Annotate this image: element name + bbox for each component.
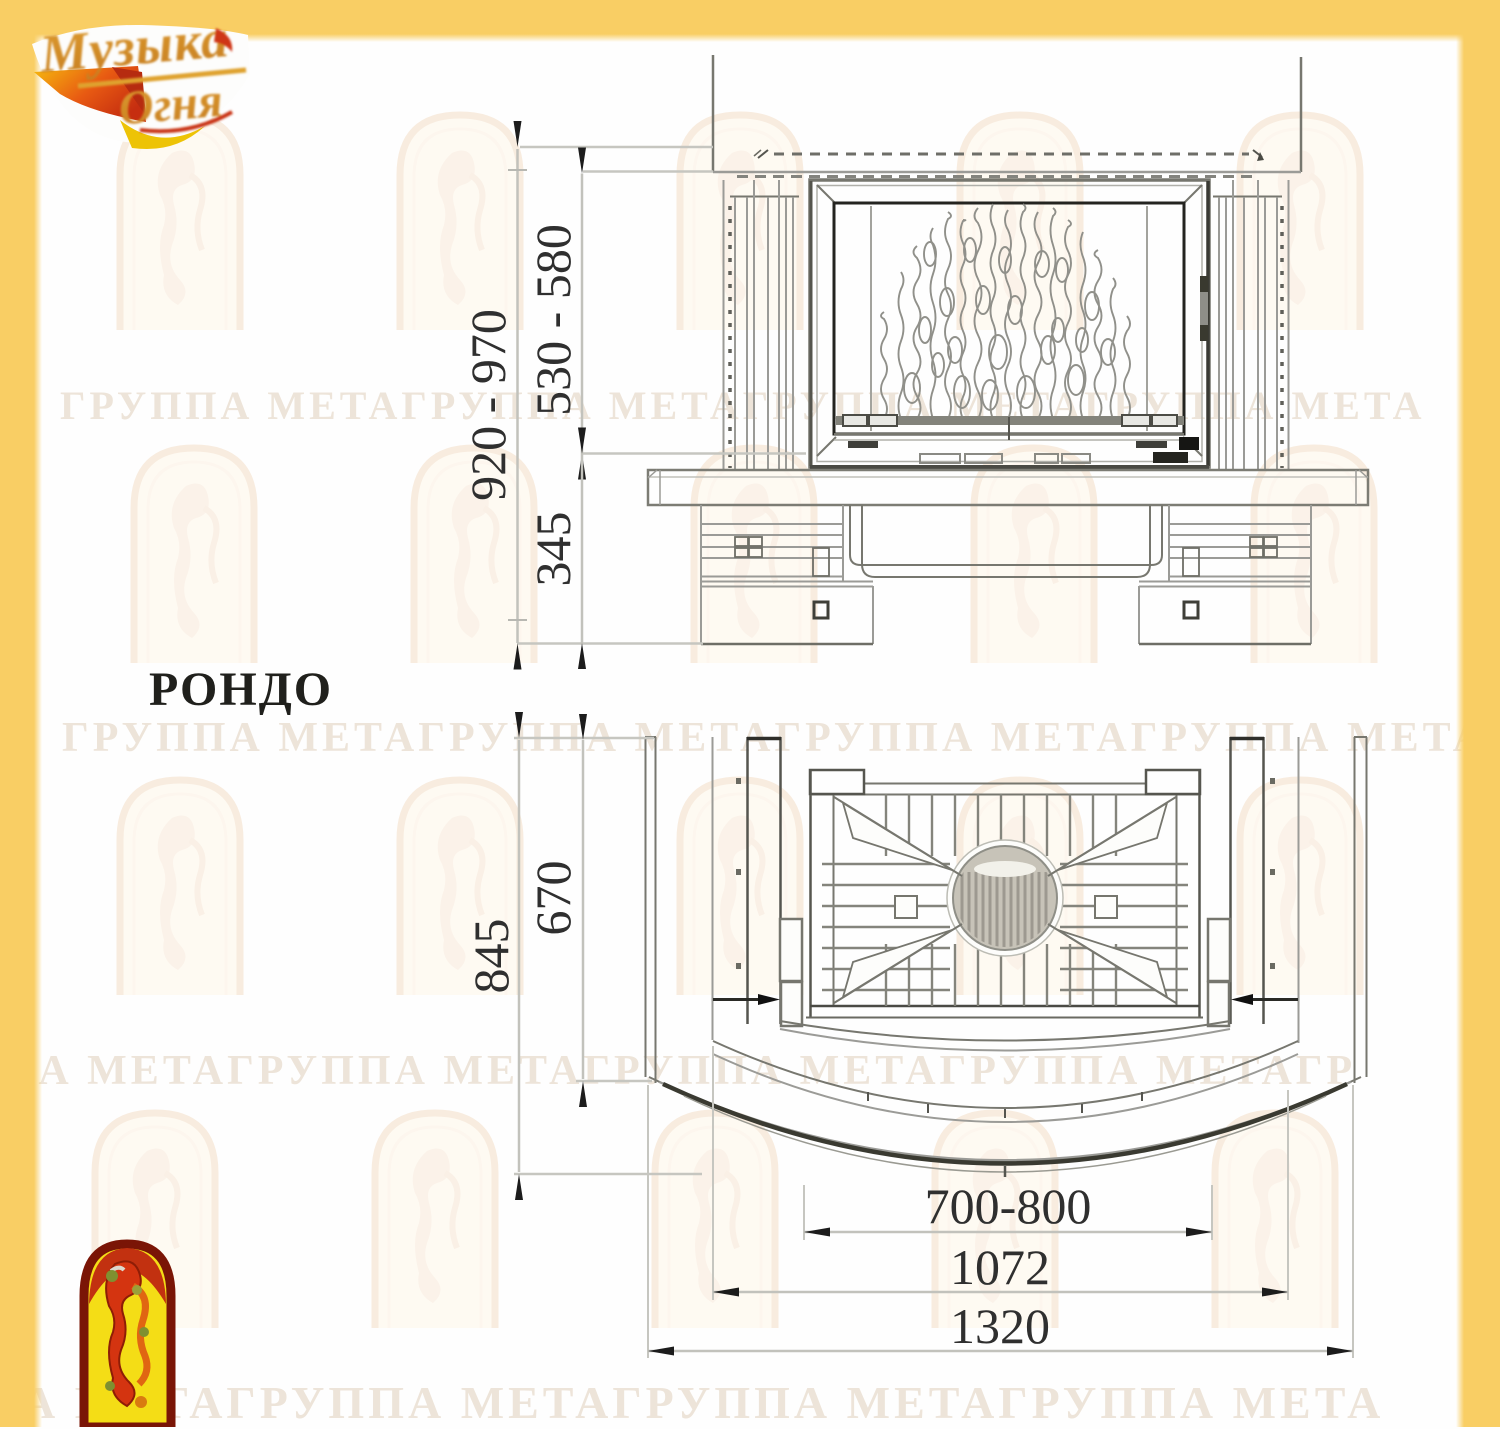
- svg-text:1072: 1072: [950, 1239, 1050, 1295]
- svg-text:1320: 1320: [950, 1298, 1050, 1354]
- svg-text:345: 345: [525, 512, 581, 587]
- svg-text:670: 670: [525, 861, 581, 936]
- svg-text:530 - 580: 530 - 580: [525, 224, 581, 416]
- svg-text:845: 845: [463, 919, 519, 994]
- svg-text:700-800: 700-800: [925, 1178, 1092, 1234]
- svg-text:920 - 970: 920 - 970: [460, 309, 516, 501]
